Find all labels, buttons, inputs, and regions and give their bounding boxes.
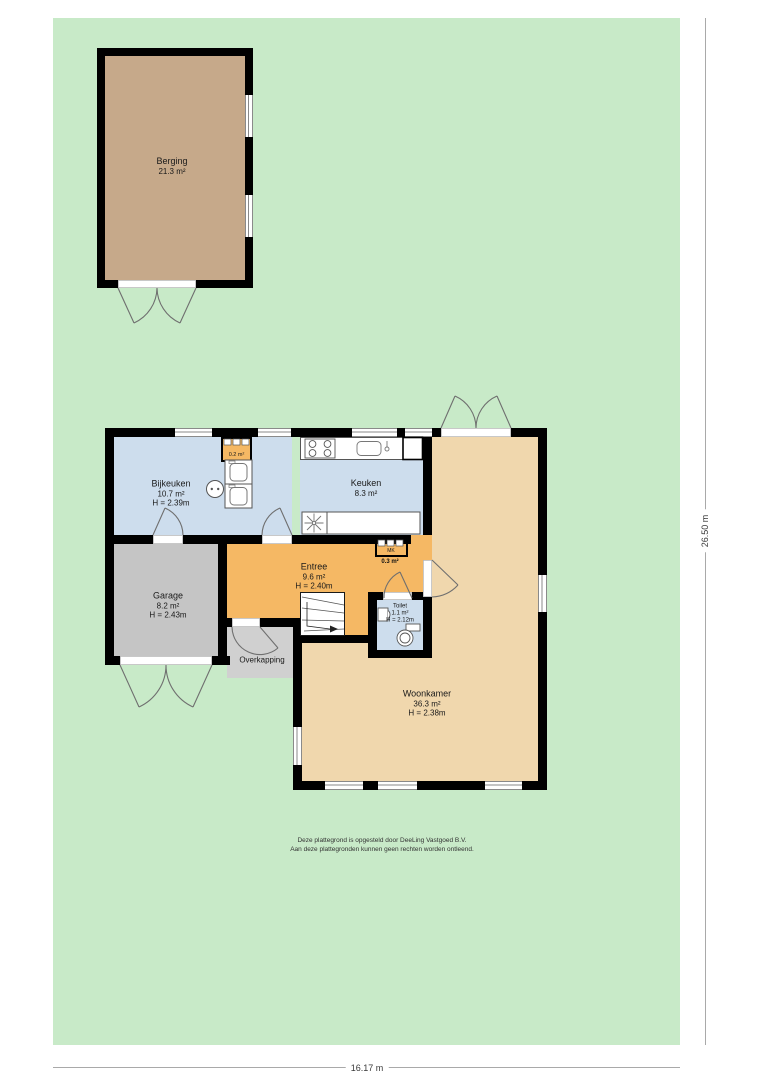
wall	[397, 428, 405, 437]
wall	[423, 597, 432, 658]
overkapping-label: Overkapping	[239, 655, 284, 664]
woonkamer-label: Woonkamer 36.3 m² H = 2.38m	[403, 688, 451, 717]
room-area: 10.7 m²	[151, 489, 190, 498]
meterkast-area-label: 0.3 m²	[381, 559, 398, 565]
wall	[245, 56, 253, 95]
room-name: Woonkamer	[403, 688, 451, 698]
room-area: 9.6 m²	[295, 572, 332, 581]
kast-area-label: 0.2 m²	[229, 452, 245, 458]
door-opening	[118, 280, 196, 288]
wall	[293, 765, 302, 781]
wall	[183, 535, 262, 544]
keuken-label: Keuken 8.3 m²	[351, 478, 382, 498]
room-name: Bijkeuken	[151, 478, 190, 488]
room-area: 1.1 m²	[386, 610, 414, 617]
wall	[105, 656, 120, 665]
window	[245, 195, 253, 237]
wall	[538, 428, 547, 575]
room-height: H = 2.43m	[149, 610, 186, 619]
room-area: 8.2 m²	[149, 601, 186, 610]
staircase	[300, 592, 345, 636]
wall	[105, 437, 114, 665]
wall	[363, 781, 378, 790]
window	[352, 428, 397, 437]
room-area: 21.3 m²	[156, 167, 187, 176]
room-area: 8.3 m²	[351, 489, 382, 498]
window	[258, 428, 291, 437]
room-height: H = 2.39m	[151, 498, 190, 507]
dimension-width-label: 16.17 m	[346, 1063, 389, 1073]
window	[538, 575, 547, 612]
dimension-height-label: 26.50 m	[700, 510, 710, 553]
meterkast-label: MK	[387, 548, 395, 554]
wall	[538, 612, 547, 790]
wall	[368, 650, 432, 658]
wall	[432, 428, 441, 437]
wall	[417, 781, 485, 790]
room-name: Toilet	[393, 603, 407, 609]
wall	[212, 428, 258, 437]
room-name: Garage	[153, 590, 183, 600]
wall	[97, 56, 105, 288]
room-name: Overkapping	[239, 655, 284, 664]
wall	[245, 137, 253, 195]
wall	[105, 535, 153, 544]
room-height: H = 2.38m	[403, 708, 451, 717]
room-name: Berging	[156, 156, 187, 166]
door-opening	[383, 592, 412, 600]
overkapping-floor	[227, 627, 293, 678]
bijkeuken-label: Bijkeuken 10.7 m² H = 2.39m	[151, 478, 190, 507]
wall	[368, 592, 383, 600]
bijkeuken-floor	[114, 437, 292, 535]
hall-passage-floor	[411, 535, 432, 560]
disclaimer-line1: Deze plattegrond is opgesteld door DeeLi…	[0, 837, 764, 846]
floorplan-canvas: Berging 21.3 m² Bijkeuken 10.7 m² H = 2.…	[0, 0, 764, 1080]
room-height: H = 2.12m	[386, 618, 414, 625]
wall	[292, 535, 411, 544]
wall	[293, 635, 370, 643]
window	[378, 781, 417, 790]
wall	[218, 535, 227, 665]
door-opening	[153, 535, 183, 544]
wall	[423, 437, 432, 535]
wall	[97, 48, 253, 56]
door-opening	[441, 428, 511, 437]
wall	[368, 592, 377, 658]
garage-label: Garage 8.2 m² H = 2.43m	[149, 590, 186, 619]
wall	[196, 280, 253, 288]
room-height: H = 2.40m	[295, 581, 332, 590]
door-opening	[232, 618, 260, 627]
wall	[97, 280, 118, 288]
window	[405, 428, 432, 437]
room-name: Entree	[301, 561, 328, 571]
wall	[412, 592, 423, 600]
window	[325, 781, 363, 790]
disclaimer-text: Deze plattegrond is opgesteld door DeeLi…	[0, 837, 764, 855]
room-area: 36.3 m²	[403, 699, 451, 708]
window	[175, 428, 212, 437]
wall	[291, 428, 352, 437]
berging-label: Berging 21.3 m²	[156, 156, 187, 176]
wall	[293, 781, 325, 790]
door-opening	[262, 535, 292, 544]
disclaimer-line2: Aan deze plattegronden kunnen geen recht…	[0, 846, 764, 855]
door-opening	[120, 656, 212, 665]
closet-kast	[221, 437, 252, 462]
room-name: Keuken	[351, 478, 382, 488]
toilet-label: Toilet 1.1 m² H = 2.12m	[386, 603, 414, 624]
wall	[105, 428, 175, 437]
door-opening	[423, 560, 432, 597]
window	[293, 727, 302, 765]
window	[245, 95, 253, 137]
window	[485, 781, 522, 790]
entree-label: Entree 9.6 m² H = 2.40m	[295, 561, 332, 590]
